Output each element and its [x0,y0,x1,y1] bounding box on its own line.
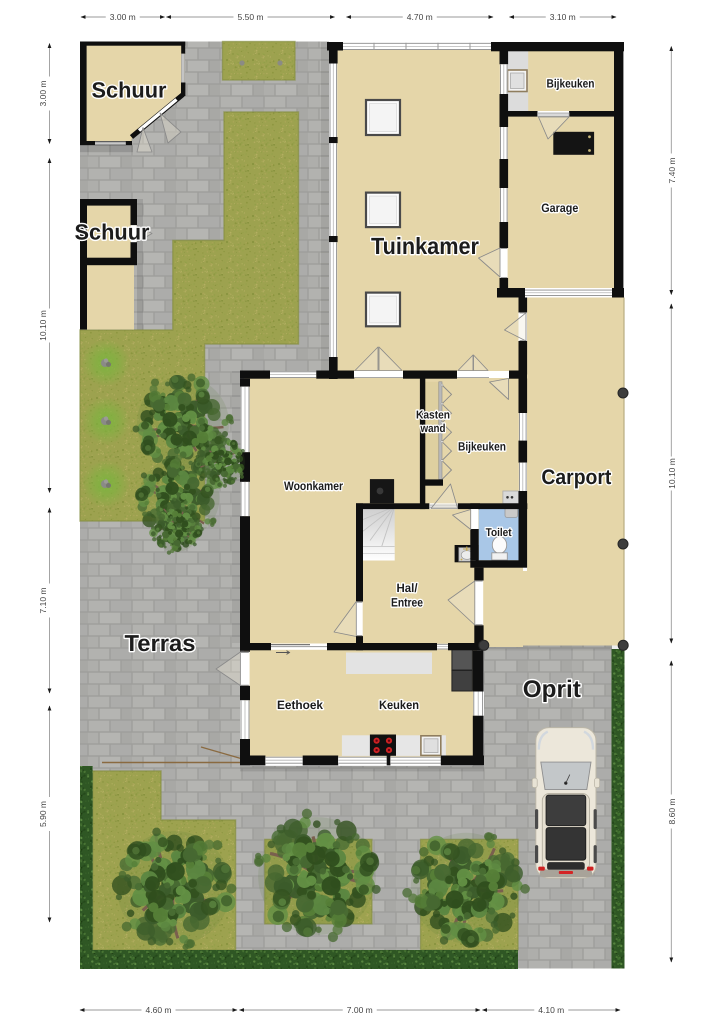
svg-text:wand: wand [420,423,446,435]
svg-text:4.60 m: 4.60 m [146,1005,172,1015]
svg-text:3.10 m: 3.10 m [550,12,576,22]
svg-text:10.10 m: 10.10 m [38,310,48,341]
svg-text:3.00 m: 3.00 m [110,12,136,22]
svg-text:Toilet: Toilet [486,527,512,539]
svg-text:7.10 m: 7.10 m [38,588,48,614]
svg-text:Kasten: Kasten [416,410,450,422]
svg-text:Tuinkamer: Tuinkamer [371,233,479,259]
svg-text:Oprit: Oprit [523,676,581,703]
svg-text:8.60 m: 8.60 m [667,799,677,825]
svg-text:5.50 m: 5.50 m [238,12,264,22]
svg-text:Eethoek: Eethoek [277,698,323,712]
svg-text:3.00 m: 3.00 m [38,81,48,107]
svg-text:5.90 m: 5.90 m [38,801,48,827]
svg-text:Keuken: Keuken [379,698,419,712]
svg-text:4.70 m: 4.70 m [407,12,433,22]
svg-text:Terras: Terras [125,630,196,656]
svg-text:Garage: Garage [541,201,578,215]
svg-text:Woonkamer: Woonkamer [284,479,343,493]
svg-text:Schuur: Schuur [92,78,167,103]
svg-text:Hal/: Hal/ [397,581,419,595]
svg-text:Schuur: Schuur [75,220,150,245]
svg-text:Bijkeuken: Bijkeuken [547,77,595,91]
svg-text:4.10 m: 4.10 m [538,1005,564,1015]
svg-text:10.10 m: 10.10 m [667,458,677,489]
svg-text:7.00 m: 7.00 m [347,1005,373,1015]
svg-text:7.40 m: 7.40 m [667,158,677,184]
svg-text:Entree: Entree [391,596,423,610]
svg-text:Carport: Carport [541,466,611,489]
svg-text:Bijkeuken: Bijkeuken [458,440,506,454]
